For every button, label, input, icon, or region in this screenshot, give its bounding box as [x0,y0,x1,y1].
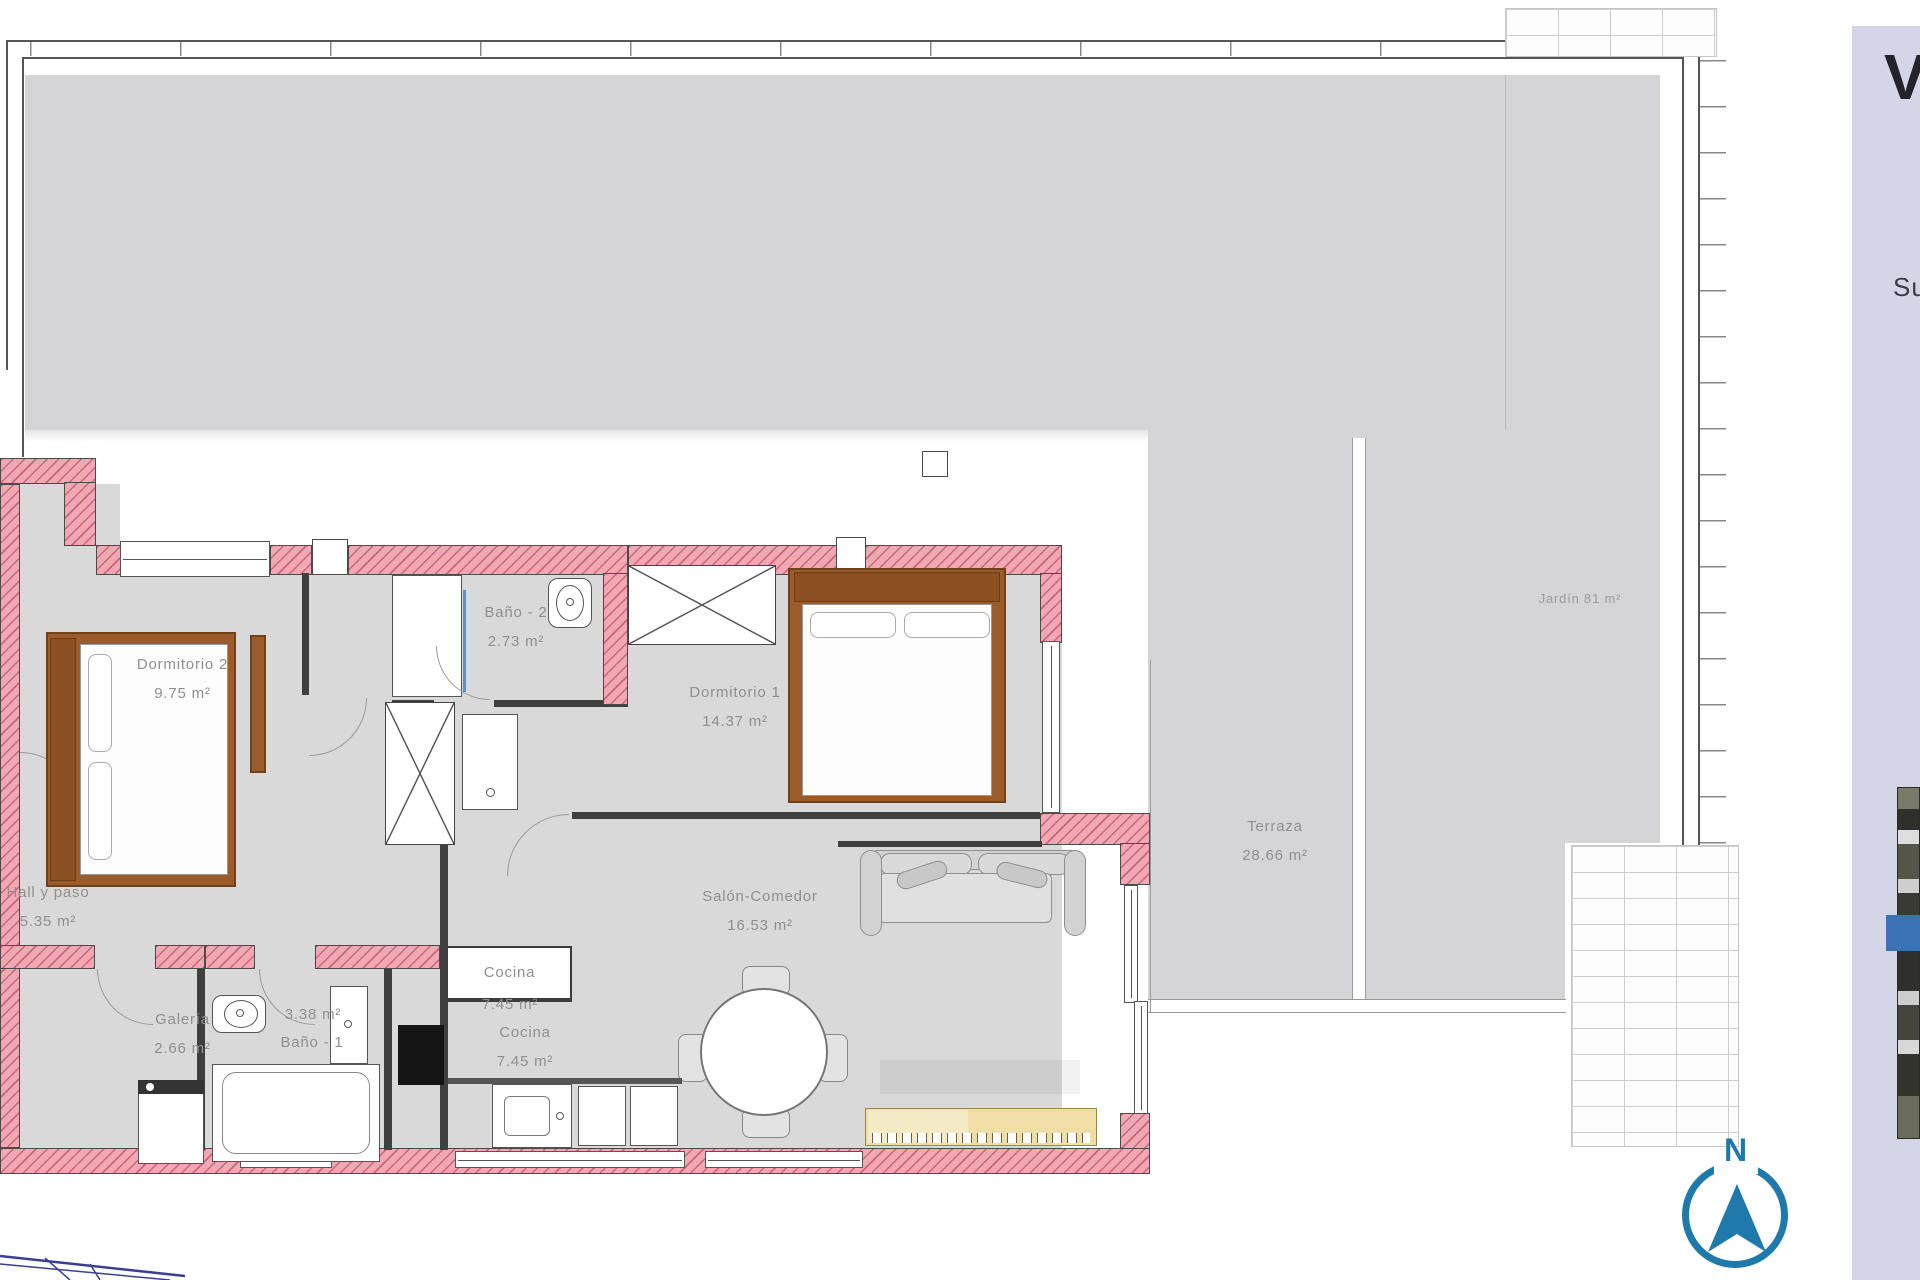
garden-border-vertical [1352,438,1366,1013]
paving-bottom-right [1571,845,1739,1147]
wall-step-horizontal [0,458,96,484]
wall-top-pier2 [270,545,312,575]
room-label-salon: Salón-Comedor16.53 m² [660,882,860,940]
boundary-top-inner [22,57,1684,59]
window-bottom-3 [705,1151,863,1168]
kitchen-appliance-2 [630,1086,678,1146]
boundary-left-outer [6,40,8,370]
panel-subtitle: Su [1893,272,1920,303]
floorplan-page: Dormitorio 29.75 m² Baño - 22.73 m² Dorm… [0,0,1920,1280]
partition-bano1-right [384,969,392,1150]
wall-corner-horizontal [1040,813,1150,845]
kitchen-sink-basin [504,1096,550,1136]
compass-north-label: N [1724,1132,1747,1169]
wireframe-sketch-fragment [0,1244,200,1280]
room-label-bano1-area: 3.38 m² [268,1000,358,1029]
kitchen-appliance-1 [578,1086,626,1146]
room-label-cocina-counter-area: 7.45 m² [460,990,560,1019]
shaft-dark [398,1025,444,1085]
wall-top-pier1 [96,545,122,575]
wall-bano2-right [603,573,628,705]
room-label-cocina: Cocina7.45 m² [455,1018,595,1076]
room-label-cocina-counter: Cocina [452,958,567,987]
sideboard-teeth [872,1133,1090,1143]
wall-top-middle [348,545,628,575]
partition-sofa-back [838,841,1042,847]
wall-step-vertical [64,482,96,546]
roof-slab-top [25,75,1660,430]
kitchen-faucet [556,1112,564,1120]
room-label-hall: Hall y paso5.35 m² [0,878,106,936]
wall-bano1-top-a [205,945,255,969]
sliding-door-panel-1 [1124,885,1138,1003]
garden-border-bottom [1148,999,1566,1013]
closet-dormitorio1 [628,565,776,645]
washing-machine-knob [146,1083,154,1091]
room-label-jardin: Jardín 81 m² [1490,584,1670,613]
partition-salon-top [572,812,1040,819]
photo-blue-band [1886,915,1920,951]
slab-shadow [25,430,1148,442]
garden-slab-right [1148,430,1660,843]
closet-hall [385,702,455,845]
vent-box-1 [312,539,348,575]
sliding-door-panel-2 [1134,1001,1148,1115]
building-photo-thumbnail [1897,787,1920,1139]
boundary-top-ticks [30,42,1680,56]
room-label-bano2: Baño - 22.73 m² [470,598,562,656]
dining-table [700,988,828,1116]
compass-arrow-icon [1702,1180,1772,1258]
bed1-pillow-2 [904,612,990,638]
slab-joint-line [1505,75,1506,430]
wall-galeria-top-a [0,945,95,969]
window-bottom-2 [455,1151,685,1168]
bed1-pillow-1 [810,612,896,638]
bathtub-inner [222,1072,370,1154]
bed2-pillow-2 [88,762,112,860]
boundary-left-inner [22,57,24,457]
glazing-dormitorio1 [1042,641,1060,813]
bed2-headboard [50,638,76,881]
terrace-edge-line [1150,660,1151,1013]
sofa-arm-left [860,850,882,936]
wall-left [0,484,20,1148]
ac-unit [922,451,948,477]
wall-corner-vertical [1120,843,1150,885]
room-label-bano1: Baño - 1 [262,1028,362,1057]
window-dormitorio2 [120,541,270,577]
room-label-terraza: Terraza28.66 m² [1195,812,1355,870]
room-label-dormitorio1: Dormitorio 114.37 m² [650,678,820,736]
toilet-bano2-dot [566,598,574,606]
tv-shadow [880,1060,1080,1094]
wall-bano1-top-b [315,945,440,969]
bed1-headboard [794,572,1000,602]
room-label-galeria: Galería2.66 m² [110,1005,255,1063]
paving-top-right [1505,8,1717,57]
partition-dorm2-right [302,573,309,695]
sofa-arm-right [1064,850,1086,936]
panel-title: V [1884,40,1920,114]
room-label-dormitorio2: Dormitorio 29.75 m² [105,650,260,708]
cabinet-hall-handle [486,788,495,797]
wall-dorm1-right-upper [1040,573,1062,643]
wall-galeria-top-b [155,945,205,969]
